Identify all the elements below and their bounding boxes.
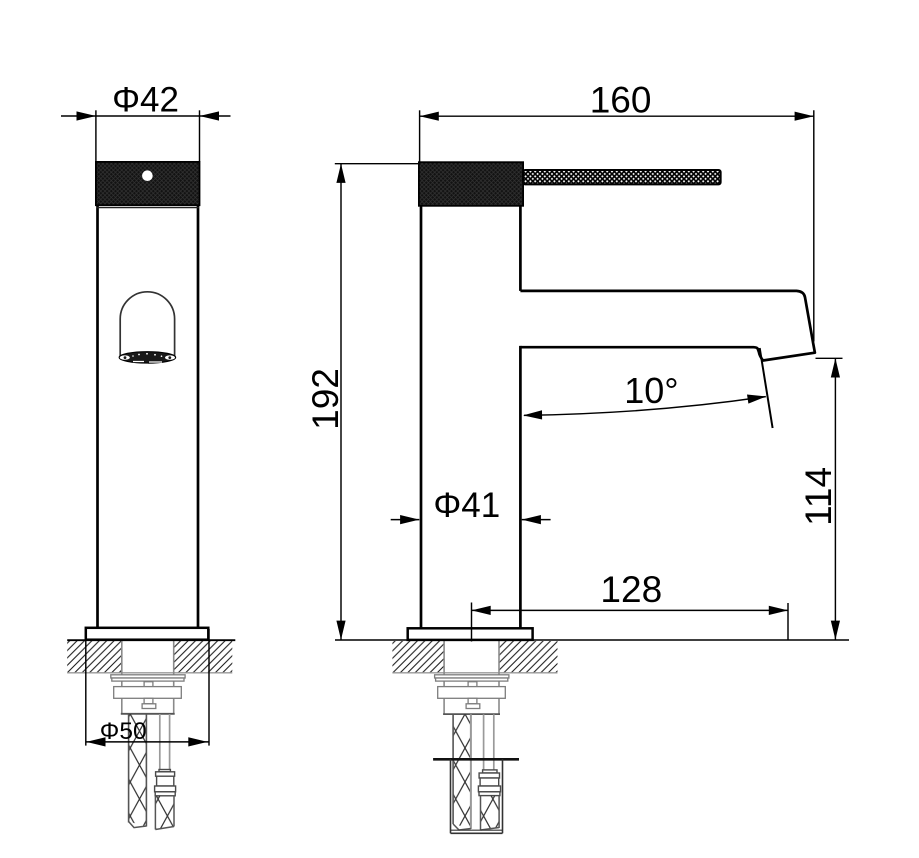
svg-text:Φ50: Φ50	[100, 718, 147, 745]
svg-text:128: 128	[600, 569, 662, 610]
svg-text:160: 160	[590, 80, 652, 121]
svg-text:114: 114	[798, 467, 839, 526]
svg-text:Φ42: Φ42	[112, 80, 179, 119]
svg-text:Φ41: Φ41	[433, 486, 500, 525]
svg-text:10°: 10°	[624, 370, 678, 411]
svg-text:192: 192	[305, 368, 346, 430]
